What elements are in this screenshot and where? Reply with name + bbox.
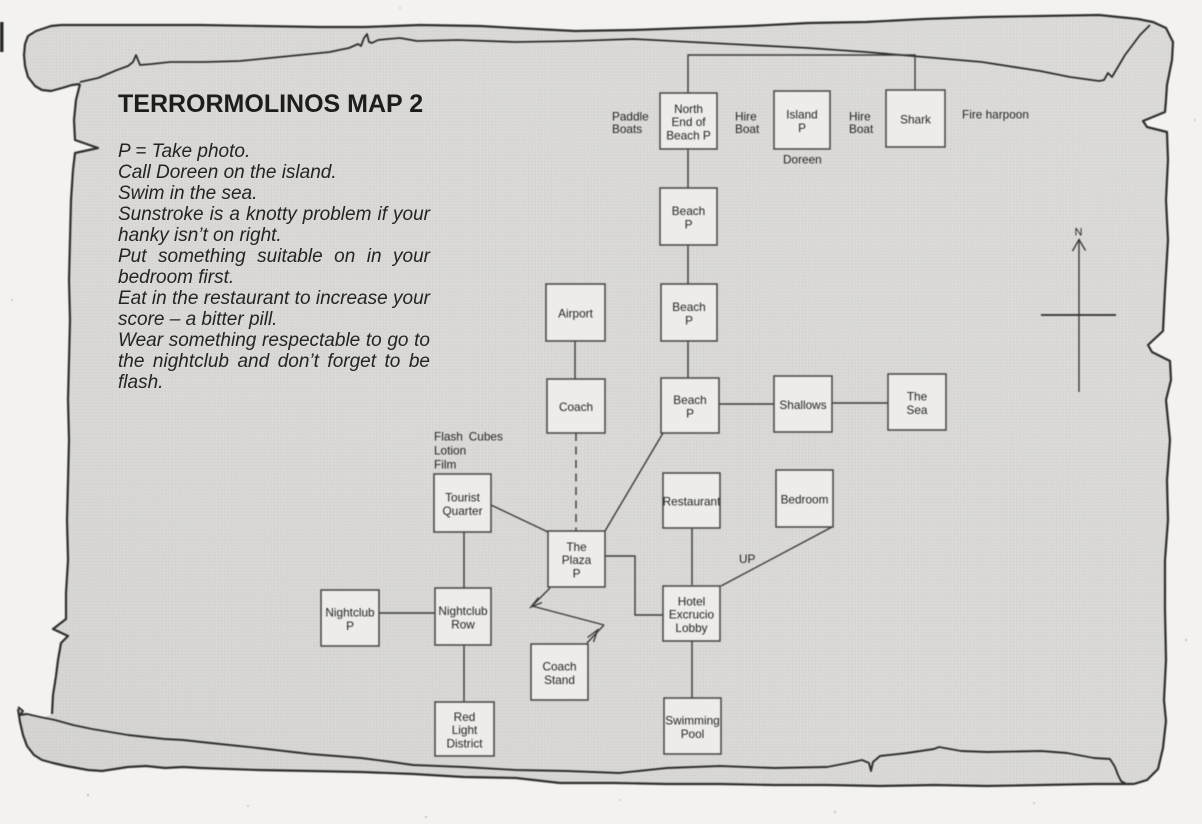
svg-text:Flash Cubes: Flash Cubes (434, 430, 503, 444)
svg-text:Hotel: Hotel (678, 595, 706, 609)
svg-text:Boat: Boat (735, 122, 760, 136)
svg-text:Nightclub: Nightclub (325, 606, 375, 620)
svg-text:Shallows: Shallows (779, 398, 826, 412)
svg-text:North: North (674, 102, 703, 116)
svg-text:End of: End of (671, 115, 706, 129)
svg-text:Airport: Airport (558, 307, 593, 321)
svg-text:Sea: Sea (907, 403, 928, 417)
svg-text:Shark: Shark (900, 113, 931, 127)
svg-text:Coach: Coach (559, 400, 593, 414)
svg-text:Lobby: Lobby (675, 621, 707, 635)
svg-text:Island: Island (786, 108, 817, 122)
svg-text:Quarter: Quarter (443, 504, 483, 518)
svg-text:Bedroom: Bedroom (781, 493, 829, 507)
svg-text:Stand: Stand (544, 673, 575, 687)
svg-text:District: District (446, 736, 483, 750)
svg-text:P: P (346, 619, 354, 633)
svg-text:Fire harpoon: Fire harpoon (962, 108, 1029, 122)
svg-text:Boat: Boat (849, 122, 874, 136)
svg-text:Lotion: Lotion (434, 443, 466, 457)
svg-text:Plaza: Plaza (562, 553, 592, 567)
svg-text:P: P (685, 313, 693, 327)
svg-text:Light: Light (452, 723, 478, 737)
svg-text:Film: Film (434, 457, 456, 471)
svg-text:UP: UP (739, 552, 756, 566)
svg-text:Coach: Coach (542, 660, 576, 674)
svg-text:Beach: Beach (673, 393, 706, 407)
svg-text:The: The (907, 390, 928, 404)
svg-text:The: The (566, 540, 587, 554)
svg-text:Beach: Beach (672, 300, 705, 314)
svg-text:Doreen: Doreen (783, 153, 822, 167)
svg-text:Tourist: Tourist (445, 491, 480, 505)
svg-text:Excrucio: Excrucio (669, 608, 715, 622)
svg-text:Row: Row (451, 617, 475, 631)
svg-text:Restaurant: Restaurant (663, 495, 721, 509)
svg-text:P: P (573, 566, 581, 580)
svg-text:Pool: Pool (681, 727, 705, 741)
svg-text:Beach P: Beach P (666, 128, 711, 142)
svg-text:Red: Red (454, 710, 476, 724)
svg-text:N: N (1075, 227, 1083, 239)
svg-text:P: P (686, 406, 694, 420)
svg-text:Swimming: Swimming (665, 714, 719, 728)
svg-text:P: P (685, 217, 693, 231)
svg-text:Boats: Boats (612, 122, 642, 136)
svg-text:Beach: Beach (672, 204, 705, 218)
svg-text:P: P (798, 121, 806, 135)
svg-text:Nightclub: Nightclub (438, 604, 488, 618)
